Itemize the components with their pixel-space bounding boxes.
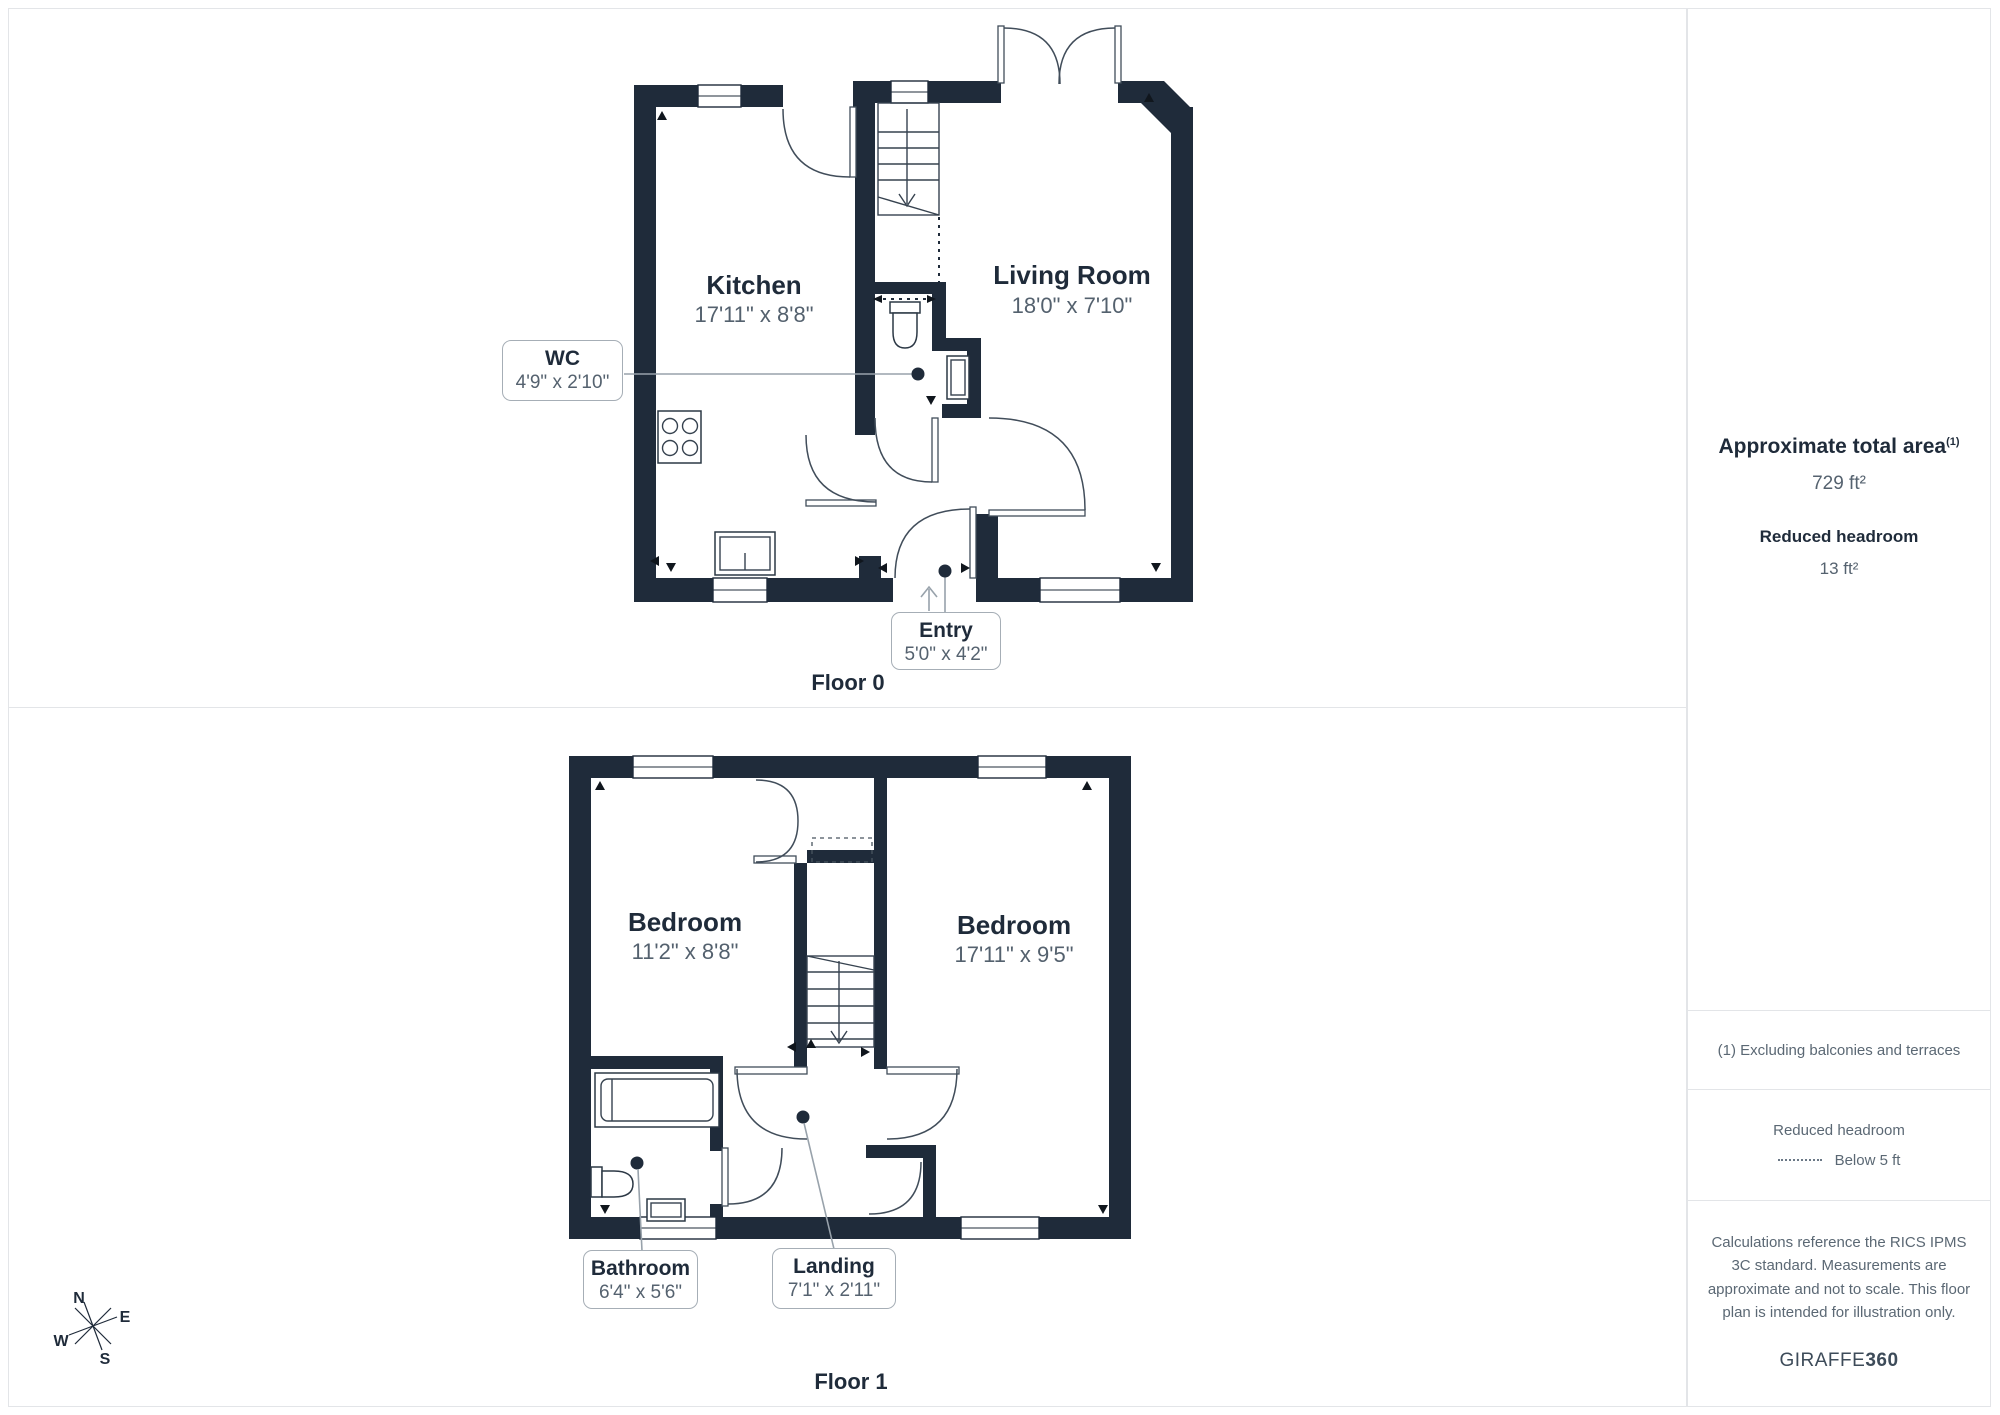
landing-left-door <box>735 1067 807 1139</box>
floor0-section: Kitchen 17'11" x 8'8" Living Room 18'0" … <box>9 9 1686 708</box>
sidebar-footnote-section: (1) Excluding balconies and terraces <box>1688 1011 1990 1090</box>
floor0-caption: Floor 0 <box>811 670 884 695</box>
floorplan-page: { "floor0": { "caption": "Floor 0", "kit… <box>0 0 2000 1415</box>
bedroom1-label: Bedroom <box>628 907 742 937</box>
french-doors <box>998 26 1121 84</box>
sidebar-area-section: Approximate total area(1) 729 ft² Reduce… <box>1688 9 1990 1011</box>
landing-label: Landing <box>773 1254 895 1280</box>
wc-dims: 4'9" x 2'10" <box>503 372 622 395</box>
total-area-label: Approximate total area(1) <box>1688 435 1990 459</box>
bedroom2-label: Bedroom <box>957 910 1071 940</box>
bedroom1-dims: 11'2" x 8'8" <box>632 939 739 964</box>
landing-label-box: Landing 7'1" x 2'11" <box>772 1248 896 1309</box>
legend-title: Reduced headroom <box>1773 1122 1905 1139</box>
wc-label: WC <box>503 346 622 372</box>
total-area-value: 729 ft² <box>1688 473 1990 495</box>
floor0-stairs <box>875 103 939 299</box>
area-footnote-marker: (1) <box>1946 436 1959 448</box>
footnote-text: (1) Excluding balconies and terraces <box>1718 1042 1961 1059</box>
kitchen-door <box>783 107 856 177</box>
kitchen-label: Kitchen <box>706 270 801 300</box>
wc-toilet-icon <box>890 302 920 348</box>
living-room-label: Living Room <box>993 260 1150 290</box>
corridor-door <box>869 1162 921 1214</box>
bedroom-cupboard-doors <box>754 780 798 863</box>
floor1-walls <box>569 756 1131 1239</box>
wc-door <box>875 418 938 482</box>
entry-arrow-icon <box>921 587 937 611</box>
landing-right-door <box>887 1067 959 1139</box>
info-sidebar: Approximate total area(1) 729 ft² Reduce… <box>1687 8 1991 1407</box>
wc-sink-icon <box>947 356 969 399</box>
floor1-caption: Floor 1 <box>814 1369 887 1394</box>
floor1-markers <box>595 781 1108 1214</box>
floor0-plan: Kitchen 17'11" x 8'8" Living Room 18'0" … <box>9 9 1688 708</box>
plans-panel: Kitchen 17'11" x 8'8" Living Room 18'0" … <box>8 8 1687 1407</box>
bedroom2-dims: 17'11" x 9'5" <box>954 942 1073 967</box>
floor1-stairs <box>807 838 874 1047</box>
floor0-leaders <box>624 368 952 614</box>
hall-door <box>806 435 876 506</box>
bathtub-icon <box>595 1073 719 1127</box>
giraffe360-logo: GIRAFFE360 <box>1779 1350 1898 1372</box>
compass-e: E <box>120 1309 131 1326</box>
kitchen-dims: 17'11" x 8'8" <box>694 302 813 327</box>
bathroom-label-box: Bathroom 6'4" x 5'6" <box>583 1250 698 1309</box>
compass-w: W <box>53 1333 69 1350</box>
bathroom-toilet-icon <box>591 1167 633 1197</box>
bathroom-label: Bathroom <box>584 1256 697 1282</box>
legend-item-label: Below 5 ft <box>1835 1152 1901 1169</box>
dashed-line-icon <box>1778 1159 1822 1161</box>
compass-n: N <box>73 1290 85 1307</box>
sidebar-disclaimer-section: Calculations reference the RICS IPMS 3C … <box>1688 1201 1990 1372</box>
entry-label: Entry <box>892 618 1000 644</box>
wc-label-box: WC 4'9" x 2'10" <box>502 340 623 401</box>
living-room-dims: 18'0" x 7'10" <box>1012 293 1133 318</box>
reduced-headroom-label: Reduced headroom <box>1688 527 1990 547</box>
reduced-headroom-value: 13 ft² <box>1688 559 1990 579</box>
sidebar-legend-section: Reduced headroom Below 5 ft <box>1688 1090 1990 1201</box>
entry-label-box: Entry 5'0" x 4'2" <box>891 612 1001 670</box>
kitchen-sink-icon <box>715 532 775 575</box>
living-room-door <box>989 418 1085 516</box>
entry-dims: 5'0" x 4'2" <box>892 644 1000 667</box>
bathroom-sink-icon <box>647 1199 685 1221</box>
landing-dims: 7'1" x 2'11" <box>773 1280 895 1303</box>
disclaimer-text: Calculations reference the RICS IPMS 3C … <box>1707 1231 1971 1324</box>
bathroom-dims: 6'4" x 5'6" <box>584 1282 697 1305</box>
floor1-room-labels: Bedroom 11'2" x 8'8" Bedroom 17'11" x 9'… <box>628 907 1074 967</box>
bathroom-door <box>722 1148 782 1206</box>
compass-s: S <box>100 1351 111 1368</box>
compass-icon: N E W S <box>53 1290 130 1368</box>
stove-icon <box>658 411 701 463</box>
